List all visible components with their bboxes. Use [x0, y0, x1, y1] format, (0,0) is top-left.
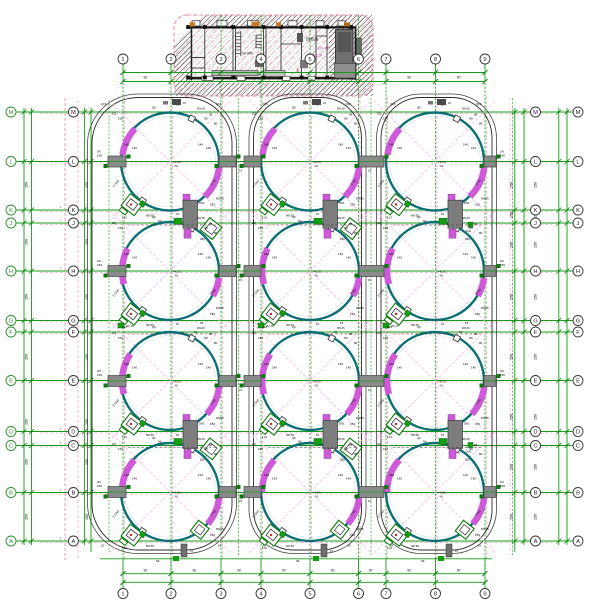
svg-text:140: 140 — [132, 146, 137, 150]
svg-text:140: 140 — [463, 143, 468, 147]
svg-text:15: 15 — [218, 544, 222, 548]
svg-text:15: 15 — [176, 322, 180, 326]
svg-text:2Q: 2Q — [377, 221, 382, 225]
svg-text:140: 140 — [264, 362, 269, 366]
svg-text:150: 150 — [534, 464, 538, 470]
svg-text:N6: N6 — [298, 219, 302, 223]
svg-text:140: 140 — [471, 256, 476, 260]
svg-text:N5: N5 — [344, 226, 348, 230]
svg-text:15: 15 — [441, 433, 445, 437]
svg-text:150: 150 — [200, 237, 205, 241]
svg-text:N9: N9 — [156, 559, 160, 563]
svg-text:DN65: DN65 — [356, 416, 364, 420]
svg-text:65: 65 — [349, 222, 353, 226]
svg-text:K: K — [71, 208, 75, 214]
svg-text:140: 140 — [198, 362, 203, 366]
svg-text:H: H — [533, 269, 537, 275]
svg-text:DN65: DN65 — [216, 527, 224, 531]
svg-text:80: 80 — [214, 452, 218, 456]
svg-text:150: 150 — [97, 484, 102, 488]
svg-text:140: 140 — [338, 362, 343, 366]
svg-text:A: A — [9, 539, 13, 545]
svg-text:1:10: 1:10 — [262, 216, 268, 220]
svg-text:C: C — [9, 444, 13, 450]
svg-text:8: 8 — [434, 57, 437, 63]
svg-text:140: 140 — [397, 146, 402, 150]
svg-text:+4.50: +4.50 — [313, 380, 321, 384]
svg-text:150: 150 — [510, 514, 514, 520]
svg-text:N1: N1 — [175, 495, 179, 499]
svg-text:DN65: DN65 — [481, 197, 489, 201]
svg-text:2Q: 2Q — [112, 442, 117, 446]
svg-text:15: 15 — [348, 544, 352, 548]
svg-text:150: 150 — [500, 263, 505, 267]
svg-text:140: 140 — [264, 252, 269, 256]
svg-text:Q15: Q15 — [476, 102, 482, 106]
svg-text:2Q: 2Q — [252, 112, 257, 116]
svg-text:140: 140 — [397, 256, 402, 260]
svg-text:Q6: Q6 — [292, 215, 296, 219]
svg-text:80: 80 — [214, 231, 218, 235]
svg-text:N1: N1 — [315, 164, 319, 168]
svg-text:150: 150 — [97, 154, 102, 158]
svg-text:C: C — [576, 444, 580, 450]
svg-text:140: 140 — [124, 473, 129, 477]
svg-text:15: 15 — [368, 388, 372, 392]
svg-text:80: 80 — [214, 122, 218, 126]
svg-text:N5: N5 — [469, 117, 473, 121]
svg-text:N5: N5 — [344, 117, 348, 121]
svg-text:2Q: 2Q — [112, 221, 117, 225]
svg-text:DN1: DN1 — [199, 201, 205, 205]
svg-text:80: 80 — [479, 231, 483, 235]
svg-text:G: G — [9, 319, 14, 325]
svg-text:1:10: 1:10 — [262, 546, 268, 550]
svg-text:3: 3 — [219, 57, 222, 63]
svg-text:N1: N1 — [440, 164, 444, 168]
svg-text:F6: F6 — [465, 321, 469, 325]
svg-text:DN15: DN15 — [337, 216, 345, 220]
svg-text:+4.50: +4.50 — [313, 270, 321, 274]
svg-text:+4.50: +4.50 — [438, 491, 446, 495]
svg-text:F: F — [9, 330, 13, 336]
svg-text:DN1: DN1 — [339, 422, 345, 426]
svg-text:150: 150 — [118, 447, 123, 451]
svg-text:65: 65 — [474, 113, 478, 117]
svg-text:150: 150 — [118, 117, 123, 121]
svg-text:65: 65 — [209, 443, 213, 447]
svg-text:DN15: DN15 — [197, 107, 205, 111]
svg-text:2Q: 2Q — [252, 221, 257, 225]
svg-text:Q15: Q15 — [101, 102, 107, 106]
svg-text:B: B — [71, 491, 75, 497]
svg-text:15: 15 — [459, 330, 463, 334]
svg-text:150: 150 — [350, 422, 355, 426]
svg-text:65: 65 — [349, 443, 353, 447]
svg-text:90: 90 — [407, 569, 411, 573]
svg-text:15: 15 — [368, 499, 372, 503]
svg-text:140: 140 — [206, 256, 211, 260]
svg-text:140: 140 — [463, 362, 468, 366]
svg-text:9: 9 — [483, 592, 486, 598]
svg-text:150: 150 — [534, 354, 538, 360]
svg-text:150: 150 — [383, 226, 388, 230]
svg-text:150: 150 — [258, 336, 263, 340]
svg-text:K: K — [576, 208, 580, 214]
svg-text:150: 150 — [510, 294, 514, 300]
svg-text:6: 6 — [357, 592, 360, 598]
svg-text:150: 150 — [383, 447, 388, 451]
svg-text:F: F — [534, 330, 538, 336]
svg-text:DN15: DN15 — [197, 216, 205, 220]
svg-text:150: 150 — [500, 484, 505, 488]
svg-text:DN1: DN1 — [464, 201, 470, 205]
svg-text:5: 5 — [308, 592, 311, 598]
svg-text:D: D — [576, 430, 580, 436]
svg-text:150: 150 — [85, 459, 89, 465]
svg-text:C: C — [533, 444, 537, 450]
svg-text:K: K — [9, 208, 13, 214]
svg-text:N9: N9 — [296, 559, 300, 563]
svg-text:140: 140 — [346, 477, 351, 481]
svg-text:140: 140 — [397, 366, 402, 370]
svg-text:150: 150 — [210, 422, 215, 426]
svg-text:15: 15 — [316, 433, 320, 437]
svg-text:80: 80 — [354, 452, 358, 456]
svg-text:F6: F6 — [200, 321, 204, 325]
svg-text:Q6: Q6 — [292, 106, 296, 110]
svg-text:140: 140 — [397, 477, 402, 481]
svg-text:+4.50: +4.50 — [173, 380, 181, 384]
svg-text:N5: N5 — [204, 336, 208, 340]
svg-text:15: 15 — [176, 433, 180, 437]
svg-text:140: 140 — [338, 143, 343, 147]
svg-text:140: 140 — [338, 473, 343, 477]
svg-text:M: M — [9, 110, 14, 116]
svg-text:Q15: Q15 — [390, 102, 396, 106]
svg-text:N1: N1 — [175, 164, 179, 168]
svg-text:150: 150 — [475, 312, 480, 316]
svg-text:140: 140 — [264, 473, 269, 477]
svg-text:±0.000: ±0.000 — [242, 52, 253, 56]
svg-text:15: 15 — [478, 544, 482, 548]
svg-text:+4.50: +4.50 — [438, 160, 446, 164]
svg-text:65: 65 — [349, 113, 353, 117]
svg-text:F6: F6 — [340, 321, 344, 325]
svg-text:F: F — [576, 330, 580, 336]
svg-text:140: 140 — [198, 473, 203, 477]
svg-text:140: 140 — [389, 362, 394, 366]
svg-text:风机房: 风机房 — [306, 36, 319, 43]
svg-text:150: 150 — [25, 294, 29, 300]
svg-text:DN15: DN15 — [462, 107, 470, 111]
svg-text:E: E — [534, 379, 538, 385]
svg-text:E: E — [71, 379, 75, 385]
svg-text:2Q: 2Q — [377, 442, 382, 446]
svg-text:DN15: DN15 — [462, 437, 470, 441]
svg-text:80: 80 — [354, 122, 358, 126]
svg-text:150: 150 — [500, 373, 505, 377]
svg-text:DN65: DN65 — [481, 527, 489, 531]
svg-text:1:10: 1:10 — [122, 216, 128, 220]
svg-text:1:10: 1:10 — [262, 325, 268, 329]
svg-text:15: 15 — [239, 499, 243, 503]
svg-text:M: M — [576, 110, 581, 116]
svg-text:N6: N6 — [158, 219, 162, 223]
svg-text:150: 150 — [534, 414, 538, 420]
svg-text:140: 140 — [264, 143, 269, 147]
svg-text:150: 150 — [465, 237, 470, 241]
svg-text:90: 90 — [369, 569, 373, 573]
svg-text:15: 15 — [316, 322, 320, 326]
svg-text:150: 150 — [510, 242, 514, 248]
svg-text:150: 150 — [97, 373, 102, 377]
svg-text:+4.50: +4.50 — [438, 270, 446, 274]
svg-text:80: 80 — [354, 231, 358, 235]
svg-text:90: 90 — [457, 76, 461, 80]
svg-text:150: 150 — [85, 419, 89, 425]
svg-text:N9: N9 — [421, 559, 425, 563]
svg-text:15: 15 — [334, 330, 338, 334]
svg-text:DN15: DN15 — [337, 107, 345, 111]
svg-text:140: 140 — [338, 252, 343, 256]
svg-text:150: 150 — [510, 464, 514, 470]
svg-text:15: 15 — [316, 212, 320, 216]
svg-text:140: 140 — [206, 477, 211, 481]
svg-text:150: 150 — [85, 294, 89, 300]
svg-text:DN15: DN15 — [462, 216, 470, 220]
svg-text:N1: N1 — [175, 274, 179, 278]
svg-text:6: 6 — [357, 57, 360, 63]
svg-text:140: 140 — [346, 146, 351, 150]
svg-text:90: 90 — [331, 569, 335, 573]
svg-text:90: 90 — [144, 76, 148, 80]
svg-text:2Q: 2Q — [252, 442, 257, 446]
svg-text:150: 150 — [258, 117, 263, 121]
svg-text:Q15: Q15 — [216, 102, 222, 106]
svg-text:140: 140 — [272, 477, 277, 481]
svg-text:G: G — [71, 319, 76, 325]
svg-text:J: J — [534, 221, 537, 227]
svg-text:150: 150 — [340, 458, 345, 462]
svg-text:140: 140 — [124, 362, 129, 366]
svg-text:140: 140 — [471, 146, 476, 150]
svg-text:D: D — [9, 430, 13, 436]
svg-text:+4.50: +4.50 — [313, 491, 321, 495]
svg-text:DN15: DN15 — [337, 326, 345, 330]
svg-text:Q15: Q15 — [346, 102, 352, 106]
svg-text:140: 140 — [463, 252, 468, 256]
svg-text:150: 150 — [85, 239, 89, 245]
svg-text:150: 150 — [97, 263, 102, 267]
svg-text:150: 150 — [510, 414, 514, 420]
svg-text:N1: N1 — [315, 384, 319, 388]
svg-text:150: 150 — [25, 514, 29, 520]
svg-text:DN65: DN65 — [216, 197, 224, 201]
svg-text:15: 15 — [368, 278, 372, 282]
svg-text:150: 150 — [85, 354, 89, 360]
svg-text:DN15: DN15 — [337, 437, 345, 441]
svg-text:8: 8 — [434, 592, 437, 598]
svg-text:2Q: 2Q — [112, 112, 117, 116]
svg-text:140: 140 — [272, 146, 277, 150]
svg-text:90: 90 — [193, 569, 197, 573]
svg-text:1:10: 1:10 — [122, 546, 128, 550]
svg-text:N5: N5 — [344, 336, 348, 340]
svg-text:F: F — [72, 330, 76, 336]
svg-text:DN65: DN65 — [216, 306, 224, 310]
svg-text:+4.50: +4.50 — [173, 160, 181, 164]
svg-text:80: 80 — [354, 341, 358, 345]
svg-text:G: G — [533, 319, 538, 325]
svg-text:150: 150 — [350, 533, 355, 537]
svg-text:DN1: DN1 — [199, 422, 205, 426]
svg-text:15: 15 — [194, 330, 198, 334]
svg-text:140: 140 — [206, 146, 211, 150]
svg-text:140: 140 — [124, 252, 129, 256]
svg-text:A: A — [534, 539, 538, 545]
svg-text:A: A — [576, 539, 580, 545]
svg-text:150: 150 — [25, 459, 29, 465]
svg-text:150: 150 — [510, 354, 514, 360]
svg-text:140: 140 — [471, 366, 476, 370]
svg-text:7: 7 — [384, 57, 387, 63]
svg-text:150: 150 — [475, 203, 480, 207]
svg-text:140: 140 — [132, 366, 137, 370]
svg-text:N1: N1 — [440, 495, 444, 499]
svg-text:150: 150 — [475, 422, 480, 426]
svg-text:Q6: Q6 — [417, 215, 421, 219]
svg-text:150: 150 — [258, 226, 263, 230]
svg-text:D: D — [533, 430, 537, 436]
svg-text:Q6: Q6 — [417, 325, 421, 329]
svg-text:1: 1 — [121, 592, 124, 598]
svg-text:150: 150 — [534, 242, 538, 248]
svg-text:M: M — [533, 110, 538, 116]
svg-text:3: 3 — [219, 592, 222, 598]
svg-text:90: 90 — [238, 569, 242, 573]
svg-text:140: 140 — [272, 256, 277, 260]
svg-text:DN65: DN65 — [216, 416, 224, 420]
svg-text:A: A — [71, 539, 75, 545]
svg-text:2: 2 — [169, 592, 172, 598]
svg-text:+4.50: +4.50 — [313, 160, 321, 164]
svg-text:80: 80 — [479, 341, 483, 345]
svg-text:B: B — [9, 491, 13, 497]
svg-text:+4.50: +4.50 — [173, 491, 181, 495]
svg-text:N6: N6 — [423, 440, 427, 444]
svg-text:150: 150 — [340, 237, 345, 241]
svg-text:140: 140 — [132, 256, 137, 260]
svg-text:N5: N5 — [204, 117, 208, 121]
svg-text:N5: N5 — [469, 226, 473, 230]
svg-text:1:10: 1:10 — [387, 435, 393, 439]
svg-text:DN65: DN65 — [481, 416, 489, 420]
svg-text:N1: N1 — [315, 274, 319, 278]
svg-text:LYL 3.5: LYL 3.5 — [318, 47, 329, 51]
svg-text:150: 150 — [475, 533, 480, 537]
svg-text:140: 140 — [132, 477, 137, 481]
svg-text:N8 50: N8 50 — [286, 544, 294, 548]
svg-text:G: G — [576, 319, 581, 325]
svg-text:90: 90 — [282, 569, 286, 573]
svg-text:Q6: Q6 — [292, 436, 296, 440]
svg-text:DN65: DN65 — [356, 306, 364, 310]
svg-text:N6: N6 — [423, 219, 427, 223]
svg-text:150: 150 — [210, 533, 215, 537]
svg-text:DN15: DN15 — [462, 326, 470, 330]
svg-text:150: 150 — [350, 312, 355, 316]
svg-text:140: 140 — [346, 366, 351, 370]
svg-text:+4.50: +4.50 — [173, 270, 181, 274]
svg-text:140: 140 — [463, 473, 468, 477]
svg-text:140: 140 — [389, 143, 394, 147]
svg-text:Q6: Q6 — [152, 106, 156, 110]
svg-text:150: 150 — [118, 336, 123, 340]
svg-text:65: 65 — [209, 222, 213, 226]
svg-text:150: 150 — [25, 182, 29, 188]
svg-text:15: 15 — [101, 544, 105, 548]
svg-text:140: 140 — [389, 473, 394, 477]
svg-text:90: 90 — [144, 569, 148, 573]
svg-text:65: 65 — [474, 443, 478, 447]
svg-text:15: 15 — [239, 388, 243, 392]
svg-text:5: 5 — [308, 57, 311, 63]
svg-text:80: 80 — [479, 122, 483, 126]
svg-text:140: 140 — [206, 366, 211, 370]
svg-text:1:10: 1:10 — [387, 216, 393, 220]
svg-text:E: E — [576, 379, 580, 385]
svg-text:150: 150 — [118, 226, 123, 230]
svg-text:H: H — [9, 269, 13, 275]
svg-text:DN15: DN15 — [197, 326, 205, 330]
svg-text:150: 150 — [258, 447, 263, 451]
svg-text:N1: N1 — [440, 384, 444, 388]
svg-text:150: 150 — [383, 336, 388, 340]
svg-text:9: 9 — [483, 57, 486, 63]
svg-text:1:10: 1:10 — [122, 325, 128, 329]
svg-text:15: 15 — [176, 212, 180, 216]
svg-text:150: 150 — [534, 294, 538, 300]
svg-text:150: 150 — [500, 154, 505, 158]
svg-text:M: M — [71, 110, 76, 116]
svg-text:N8 50: N8 50 — [411, 544, 419, 548]
svg-text:B: B — [576, 491, 580, 497]
svg-text:N8 50: N8 50 — [146, 544, 154, 548]
svg-text:150: 150 — [534, 182, 538, 188]
svg-text:65: 65 — [209, 113, 213, 117]
svg-text:Q6: Q6 — [292, 325, 296, 329]
svg-text:N5: N5 — [469, 336, 473, 340]
svg-text:140: 140 — [389, 252, 394, 256]
svg-text:150: 150 — [25, 419, 29, 425]
svg-text:J: J — [10, 221, 13, 227]
svg-text:N5: N5 — [204, 226, 208, 230]
svg-text:65: 65 — [474, 222, 478, 226]
svg-text:7: 7 — [384, 592, 387, 598]
svg-text:1:10: 1:10 — [262, 435, 268, 439]
svg-text:消: 消 — [296, 68, 299, 73]
svg-text:140: 140 — [198, 143, 203, 147]
svg-text:Q6: Q6 — [152, 215, 156, 219]
svg-text:140: 140 — [346, 256, 351, 260]
svg-text:90: 90 — [407, 76, 411, 80]
svg-text:H: H — [576, 269, 580, 275]
svg-text:N6: N6 — [158, 440, 162, 444]
svg-text:E: E — [9, 379, 13, 385]
svg-text:K: K — [534, 208, 538, 214]
svg-text:150: 150 — [510, 182, 514, 188]
